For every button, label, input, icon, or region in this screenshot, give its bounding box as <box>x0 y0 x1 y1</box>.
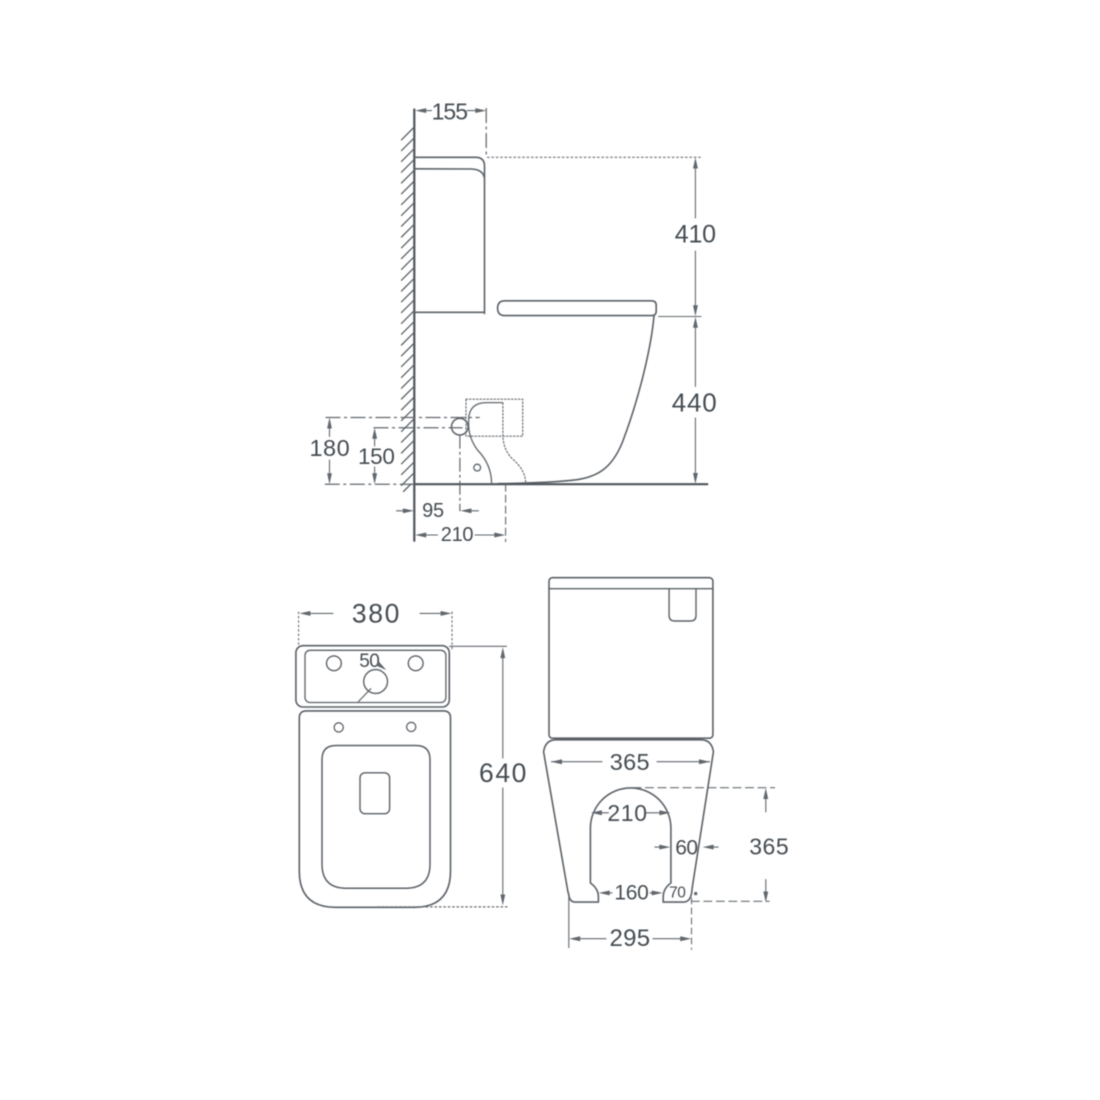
svg-text:180: 180 <box>309 435 350 461</box>
svg-text:440: 440 <box>672 387 718 417</box>
svg-text:95: 95 <box>422 500 444 522</box>
svg-text:60: 60 <box>675 836 697 859</box>
svg-text:365: 365 <box>749 834 789 860</box>
svg-text:50: 50 <box>359 651 379 672</box>
svg-text:210: 210 <box>441 524 474 546</box>
svg-text:365: 365 <box>610 749 650 775</box>
svg-text:155: 155 <box>432 98 468 124</box>
svg-text:295: 295 <box>610 925 651 952</box>
svg-text:210: 210 <box>607 800 647 826</box>
svg-text:410: 410 <box>675 220 716 248</box>
svg-text:150: 150 <box>358 444 395 469</box>
svg-text:160: 160 <box>614 882 648 905</box>
svg-text:70: 70 <box>669 884 686 901</box>
svg-text:640: 640 <box>479 758 528 788</box>
svg-text:380: 380 <box>352 599 401 629</box>
